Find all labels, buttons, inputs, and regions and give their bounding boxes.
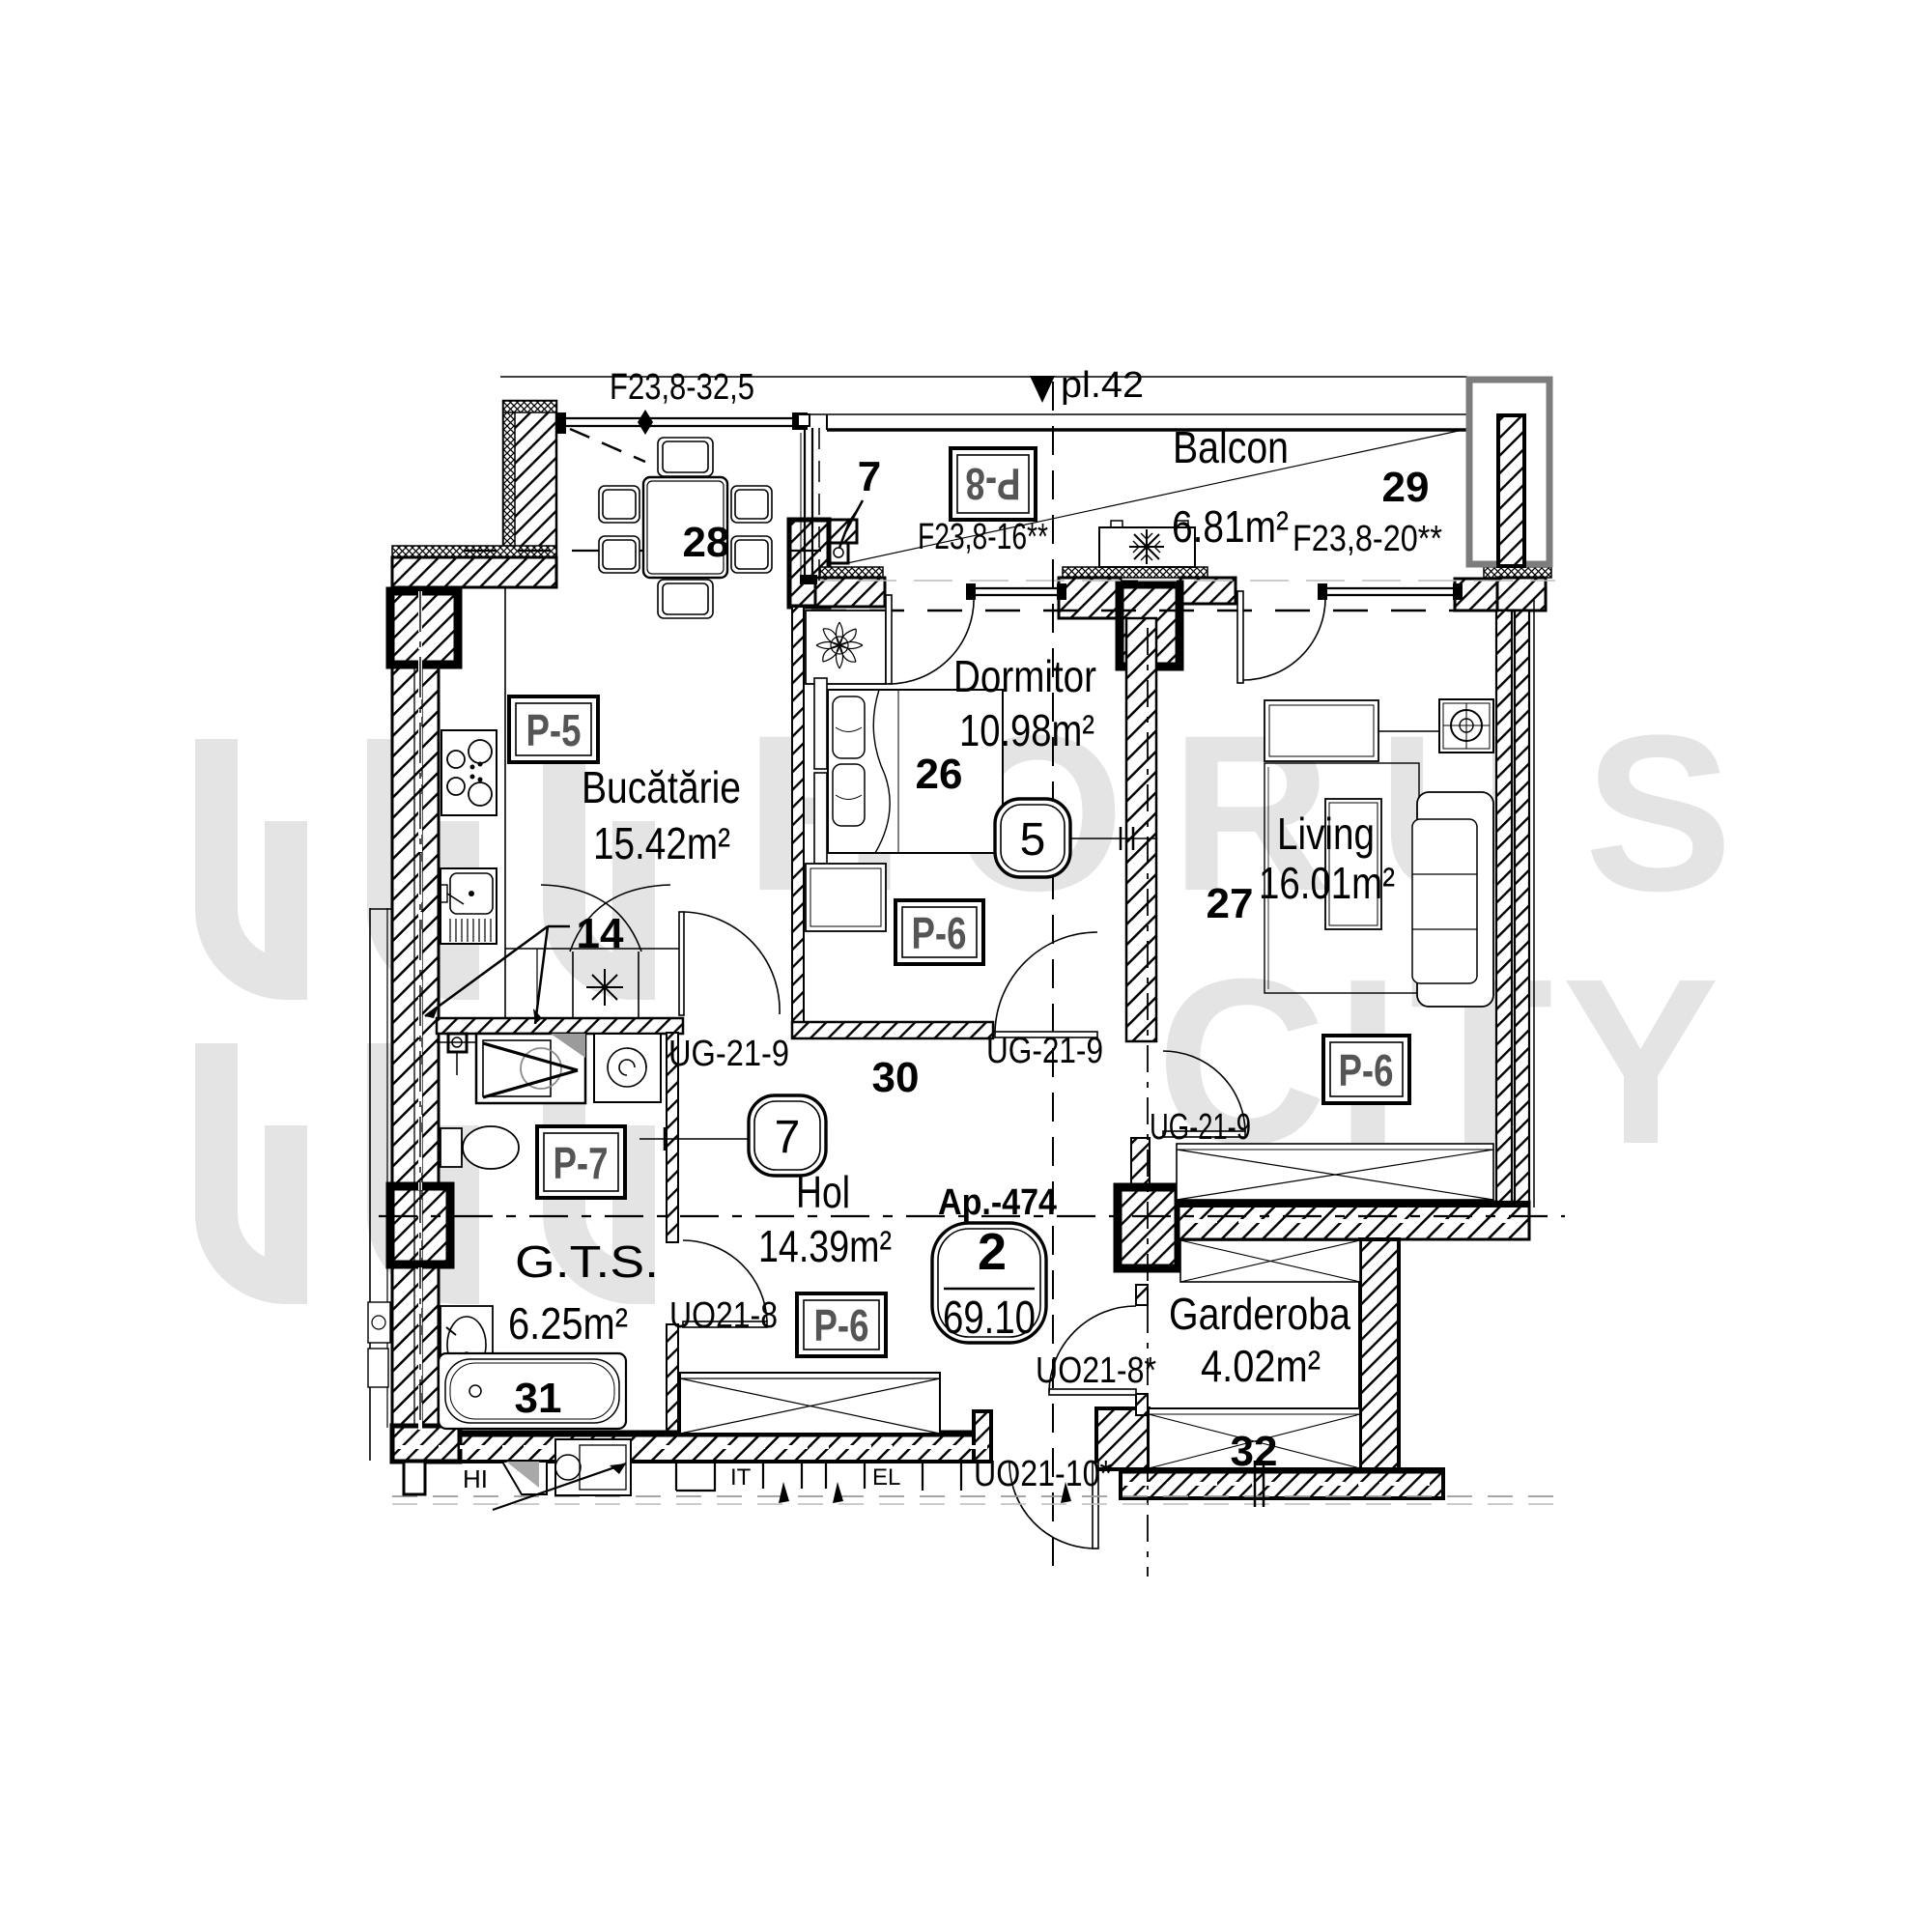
svg-text:F23,8-16**: F23,8-16**	[918, 517, 1048, 557]
svg-text:UO21-10*: UO21-10*	[974, 1454, 1112, 1494]
svg-text:31: 31	[515, 1375, 562, 1422]
svg-text:6.25m²: 6.25m²	[508, 1298, 628, 1349]
svg-text:P-6: P-6	[912, 908, 967, 958]
svg-text:F23,8-32,5: F23,8-32,5	[610, 367, 754, 408]
svg-text:G.T.S.: G.T.S.	[515, 1236, 659, 1287]
svg-text:Living: Living	[1277, 809, 1375, 859]
svg-text:15.42m²: 15.42m²	[593, 818, 730, 868]
svg-text:P-6: P-6	[814, 1300, 869, 1350]
svg-text:69.10: 69.10	[943, 1293, 1036, 1344]
svg-text:29: 29	[1382, 464, 1430, 511]
svg-text:6.81m²: 6.81m²	[1172, 501, 1289, 552]
svg-text:4.02m²: 4.02m²	[1201, 1341, 1321, 1391]
svg-text:7: 7	[775, 1112, 801, 1163]
svg-text:16.01m²: 16.01m²	[1259, 858, 1395, 908]
svg-text:14.39m²: 14.39m²	[758, 1221, 892, 1271]
svg-text:Bucătărie: Bucătărie	[582, 762, 741, 812]
svg-text:Dormitor: Dormitor	[953, 651, 1096, 701]
svg-text:30: 30	[872, 1054, 920, 1101]
svg-text:P-8: P-8	[966, 459, 1021, 509]
svg-text:Balcon: Balcon	[1173, 422, 1289, 472]
svg-text:Hol: Hol	[796, 1167, 850, 1217]
svg-text:14: 14	[577, 910, 624, 957]
svg-text:2: 2	[978, 1223, 1007, 1281]
svg-text:F23,8-20**: F23,8-20**	[1293, 519, 1442, 559]
svg-text:UO21-8: UO21-8	[669, 1295, 778, 1336]
svg-text:EL: EL	[872, 1464, 900, 1491]
svg-text:7: 7	[858, 453, 881, 500]
svg-text:IT: IT	[730, 1464, 752, 1491]
svg-text:HI: HI	[463, 1464, 488, 1493]
svg-text:5: 5	[1020, 814, 1046, 866]
svg-text:UG-21-9: UG-21-9	[1150, 1107, 1251, 1148]
svg-text:26: 26	[916, 751, 963, 798]
svg-text:P-7: P-7	[554, 1138, 609, 1188]
svg-text:UG-21-9: UG-21-9	[668, 1034, 789, 1074]
svg-text:Ap.-474: Ap.-474	[938, 1182, 1057, 1223]
svg-text:27: 27	[1207, 880, 1254, 927]
svg-text:UO21-8*: UO21-8*	[1036, 1350, 1156, 1391]
svg-text:P-5: P-5	[526, 705, 582, 755]
svg-text:10.98m²: 10.98m²	[959, 705, 1094, 755]
svg-text:28: 28	[683, 519, 730, 566]
svg-text:P-6: P-6	[1339, 1045, 1394, 1095]
svg-text:pl.42: pl.42	[1061, 365, 1144, 406]
svg-text:UG-21-9: UG-21-9	[986, 1031, 1103, 1071]
svg-text:Garderoba: Garderoba	[1169, 1289, 1350, 1339]
